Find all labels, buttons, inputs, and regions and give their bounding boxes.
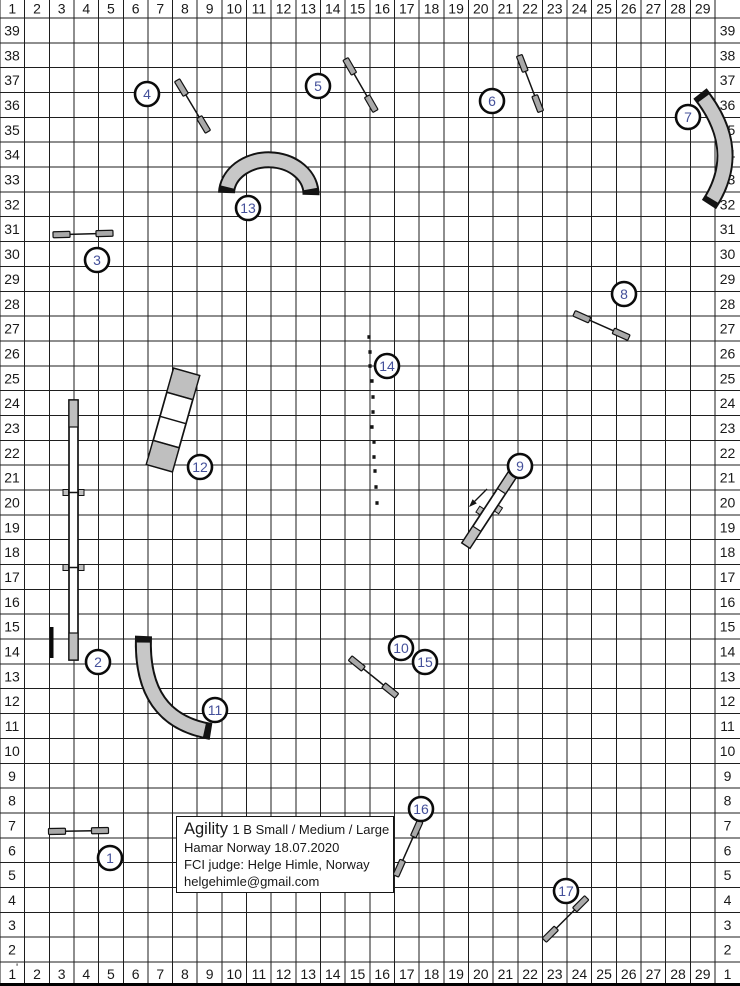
- col-label-top: 2: [33, 1, 41, 17]
- row-label-left: 15: [4, 619, 20, 635]
- row-label-left: 32: [4, 196, 20, 212]
- event-location-date: Hamar Norway 18.07.2020: [184, 839, 393, 856]
- col-label-top: 25: [596, 1, 612, 17]
- badge-number: 2: [94, 654, 102, 670]
- col-label-bottom: 25: [596, 966, 612, 982]
- row-label-right: 31: [720, 221, 736, 237]
- col-label-bottom: 15: [350, 966, 366, 982]
- obstacle-badge-17: 17: [554, 879, 578, 903]
- row-label-right: 16: [720, 594, 736, 610]
- col-label-bottom: 13: [300, 966, 316, 982]
- col-label-top: 21: [498, 1, 514, 17]
- tunnel-obstacle-7: [700, 94, 725, 205]
- row-label-left: 25: [4, 370, 20, 386]
- badge-number: 11: [208, 702, 223, 718]
- row-label-left: 11: [5, 718, 20, 734]
- row-label-left: 16: [4, 594, 20, 610]
- badge-number: 10: [393, 640, 409, 656]
- col-label-bottom: 2: [33, 966, 41, 982]
- col-label-top: 20: [473, 1, 489, 17]
- badge-number: 3: [93, 252, 101, 268]
- col-label-top: 10: [226, 1, 242, 17]
- obstacle-badge-1: 1: [98, 846, 122, 870]
- col-label-bottom: 27: [646, 966, 662, 982]
- obstacle-badge-14: 14: [375, 354, 399, 378]
- course-class: 1 B Small / Medium / Large: [232, 822, 389, 837]
- row-label-left: 33: [4, 172, 20, 188]
- direction-arrow: [469, 489, 487, 507]
- row-label-left: 37: [4, 72, 20, 88]
- weave-pole-dot: [371, 410, 374, 414]
- row-label-right: 13: [720, 668, 736, 684]
- col-label-top: 9: [206, 1, 214, 17]
- badge-number: 16: [413, 801, 429, 817]
- corner-tick: ': [16, 962, 18, 974]
- row-label-left: 30: [4, 246, 20, 262]
- row-label-left: 20: [4, 495, 20, 511]
- agility-course-map: 1122334455667788991010111112121313141415…: [0, 0, 740, 986]
- row-label-right: 38: [720, 47, 736, 63]
- weave-pole-dot: [371, 395, 374, 399]
- row-label-right: 12: [720, 693, 736, 709]
- obstacle-badge-7: 7: [676, 105, 700, 129]
- seesaw-obstacle-9: [458, 469, 521, 551]
- badge-number: 1: [106, 850, 114, 866]
- weave-pole-dot: [372, 455, 375, 459]
- stray-mark: [50, 627, 54, 658]
- row-label-left: 9: [8, 768, 16, 784]
- row-label-left: 13: [4, 668, 20, 684]
- dog-walk-obstacle-2: [63, 400, 84, 660]
- col-label-bottom: 14: [325, 966, 341, 982]
- course-title: Agility: [184, 820, 228, 838]
- jump-obstacle-3: [53, 230, 113, 238]
- col-label-top: 14: [325, 1, 341, 17]
- col-label-top: 11: [252, 1, 267, 17]
- row-label-left: 8: [8, 793, 16, 809]
- obstacle-badge-8: 8: [612, 282, 636, 306]
- obstacle-badge-13: 13: [236, 196, 260, 220]
- col-label-bottom: 18: [424, 966, 440, 982]
- weave-pole-dot: [367, 335, 370, 339]
- jump-obstacle-6: [516, 54, 543, 112]
- col-label-bottom: 8: [181, 966, 189, 982]
- row-label-left: 38: [4, 47, 20, 63]
- row-label-left: 10: [4, 743, 20, 759]
- col-label-top: 29: [695, 1, 711, 17]
- email-line: helgehimle@gmail.com: [184, 873, 393, 890]
- col-label-bottom: 20: [473, 966, 489, 982]
- jump-obstacle-1: [48, 827, 108, 834]
- col-label-top: 24: [572, 1, 588, 17]
- row-label-right: 2: [724, 942, 732, 958]
- weave-pole-dot: [368, 350, 371, 354]
- col-label-bottom: 26: [621, 966, 637, 982]
- row-label-left: 6: [8, 842, 16, 858]
- col-label-top: 19: [448, 1, 464, 17]
- row-label-left: 18: [4, 544, 20, 560]
- col-label-top: 23: [547, 1, 563, 17]
- jump-obstacle-4: [174, 79, 210, 134]
- row-label-left: 27: [4, 321, 20, 337]
- col-label-bottom: 6: [132, 966, 140, 982]
- a-frame-obstacle-12: [146, 368, 199, 472]
- row-label-right: 3: [724, 917, 732, 933]
- row-label-left: 23: [4, 420, 20, 436]
- row-label-left: 2: [8, 942, 16, 958]
- row-label-left: 29: [4, 271, 20, 287]
- weave-pole-dot: [374, 485, 377, 489]
- row-label-left: 12: [4, 693, 20, 709]
- badge-number: 7: [684, 109, 692, 125]
- row-label-left: 39: [4, 23, 20, 39]
- col-label-top: 27: [646, 1, 662, 17]
- row-label-right: 1: [724, 966, 732, 982]
- row-label-right: 26: [720, 345, 736, 361]
- col-label-top: 6: [132, 1, 140, 17]
- row-label-right: 27: [720, 321, 736, 337]
- badge-number: 9: [516, 458, 524, 474]
- row-label-left: 31: [4, 221, 20, 237]
- col-label-top: 16: [374, 1, 390, 17]
- badge-number: 12: [192, 459, 208, 475]
- col-label-top: 26: [621, 1, 637, 17]
- col-label-top: 15: [350, 1, 366, 17]
- obstacle-badge-6: 6: [480, 89, 504, 113]
- col-label-top: 13: [300, 1, 316, 17]
- badge-number: 5: [314, 78, 322, 94]
- row-label-right: 8: [724, 793, 732, 809]
- row-label-right: 18: [720, 544, 736, 560]
- col-label-top: 18: [424, 1, 440, 17]
- col-label-top: 1: [8, 1, 16, 17]
- row-label-right: 7: [724, 817, 732, 833]
- row-label-right: 9: [724, 768, 732, 784]
- row-label-right: 21: [720, 470, 736, 486]
- badge-number: 17: [558, 883, 574, 899]
- tunnel-obstacle-11: [143, 636, 211, 732]
- obstacle-badge-12: 12: [188, 455, 212, 479]
- row-label-left: 14: [4, 644, 20, 660]
- tunnel-obstacle-13: [227, 160, 312, 195]
- row-label-left: 17: [4, 569, 20, 585]
- col-label-bottom: 29: [695, 966, 711, 982]
- col-label-top: 17: [399, 1, 415, 17]
- col-label-top: 5: [107, 1, 115, 17]
- col-label-bottom: 19: [448, 966, 464, 982]
- row-label-left: 26: [4, 345, 20, 361]
- obstacle-badge-4: 4: [135, 82, 159, 106]
- row-label-right: 39: [720, 23, 736, 39]
- course-info-box: Agility 1 B Small / Medium / Large Hamar…: [176, 816, 394, 893]
- row-label-right: 17: [720, 569, 736, 585]
- row-label-left: 19: [4, 519, 20, 535]
- weave-pole-dot: [370, 425, 373, 429]
- row-label-right: 36: [720, 97, 736, 113]
- row-label-left: 35: [4, 122, 20, 138]
- row-label-right: 5: [724, 867, 732, 883]
- jump-obstacle-10-15: [348, 656, 398, 698]
- row-label-right: 25: [720, 370, 736, 386]
- row-label-right: 29: [720, 271, 736, 287]
- col-label-bottom: 4: [82, 966, 90, 982]
- weave-pole-dot: [370, 379, 373, 383]
- obstacle-badge-11: 11: [203, 698, 227, 722]
- row-label-left: 22: [4, 445, 20, 461]
- col-label-bottom: 22: [522, 966, 538, 982]
- row-label-left: 4: [8, 892, 16, 908]
- col-label-bottom: 12: [276, 966, 292, 982]
- row-label-right: 11: [720, 718, 735, 734]
- obstacles-layer: [48, 54, 725, 942]
- badge-number: 6: [488, 93, 496, 109]
- row-label-right: 28: [720, 296, 736, 312]
- badge-number: 4: [143, 86, 151, 102]
- row-label-right: 22: [720, 445, 736, 461]
- col-label-bottom: 9: [206, 966, 214, 982]
- obstacle-badge-5: 5: [306, 74, 330, 98]
- weave-pole-dot: [372, 440, 375, 444]
- course-title-line: Agility 1 B Small / Medium / Large: [184, 820, 393, 839]
- badge-number: 8: [620, 286, 628, 302]
- row-label-left: 36: [4, 97, 20, 113]
- col-label-bottom: 21: [498, 966, 514, 982]
- obstacle-badge-15: 15: [413, 650, 437, 674]
- weave-pole-dot: [375, 501, 378, 505]
- badge-number: 15: [417, 654, 433, 670]
- row-label-right: 24: [720, 395, 736, 411]
- row-label-right: 4: [724, 892, 732, 908]
- row-label-right: 14: [720, 644, 736, 660]
- row-label-right: 10: [720, 743, 736, 759]
- col-label-top: 3: [58, 1, 66, 17]
- col-label-top: 28: [670, 1, 686, 17]
- col-label-bottom: 10: [226, 966, 242, 982]
- col-label-bottom: 5: [107, 966, 115, 982]
- col-label-bottom: 7: [156, 966, 164, 982]
- obstacle-badges: 1234567891011121314151617: [85, 74, 700, 903]
- badge-number: 14: [379, 358, 395, 374]
- col-label-top: 12: [276, 1, 292, 17]
- row-label-left: 5: [8, 867, 16, 883]
- obstacle-badge-10: 10: [389, 636, 413, 660]
- obstacle-badge-2: 2: [86, 650, 110, 674]
- row-label-left: 34: [4, 147, 20, 163]
- obstacle-badge-16: 16: [409, 797, 433, 821]
- col-label-top: 8: [181, 1, 189, 17]
- col-label-bottom: 16: [374, 966, 390, 982]
- row-label-right: 20: [720, 495, 736, 511]
- row-label-right: 19: [720, 519, 736, 535]
- row-label-left: 3: [8, 917, 16, 933]
- row-label-right: 23: [720, 420, 736, 436]
- col-label-top: 4: [82, 1, 90, 17]
- badge-number: 13: [240, 200, 256, 216]
- jump-obstacle-8: [573, 311, 630, 341]
- obstacle-badge-9: 9: [508, 454, 532, 478]
- weave-pole-dot: [373, 469, 376, 473]
- weave-pole-dot: [368, 364, 371, 368]
- jump-obstacle-16: [393, 820, 423, 877]
- jump-obstacle-5: [343, 58, 378, 113]
- col-label-bottom: 28: [670, 966, 686, 982]
- row-label-right: 15: [720, 619, 736, 635]
- col-label-top: 22: [522, 1, 538, 17]
- row-label-left: 28: [4, 296, 20, 312]
- row-label-right: 37: [720, 72, 736, 88]
- col-label-top: 7: [156, 1, 164, 17]
- row-label-right: 6: [724, 842, 732, 858]
- col-label-bottom: 24: [572, 966, 588, 982]
- row-label-left: 7: [8, 817, 16, 833]
- row-label-left: 21: [4, 470, 20, 486]
- col-label-bottom: 3: [58, 966, 66, 982]
- col-label-bottom: 23: [547, 966, 563, 982]
- obstacle-badge-3: 3: [85, 248, 109, 272]
- row-label-left: 24: [4, 395, 20, 411]
- row-label-right: 30: [720, 246, 736, 262]
- col-label-bottom: 11: [252, 966, 267, 982]
- judge-line: FCI judge: Helge Himle, Norway: [184, 856, 393, 873]
- col-label-bottom: 17: [399, 966, 415, 982]
